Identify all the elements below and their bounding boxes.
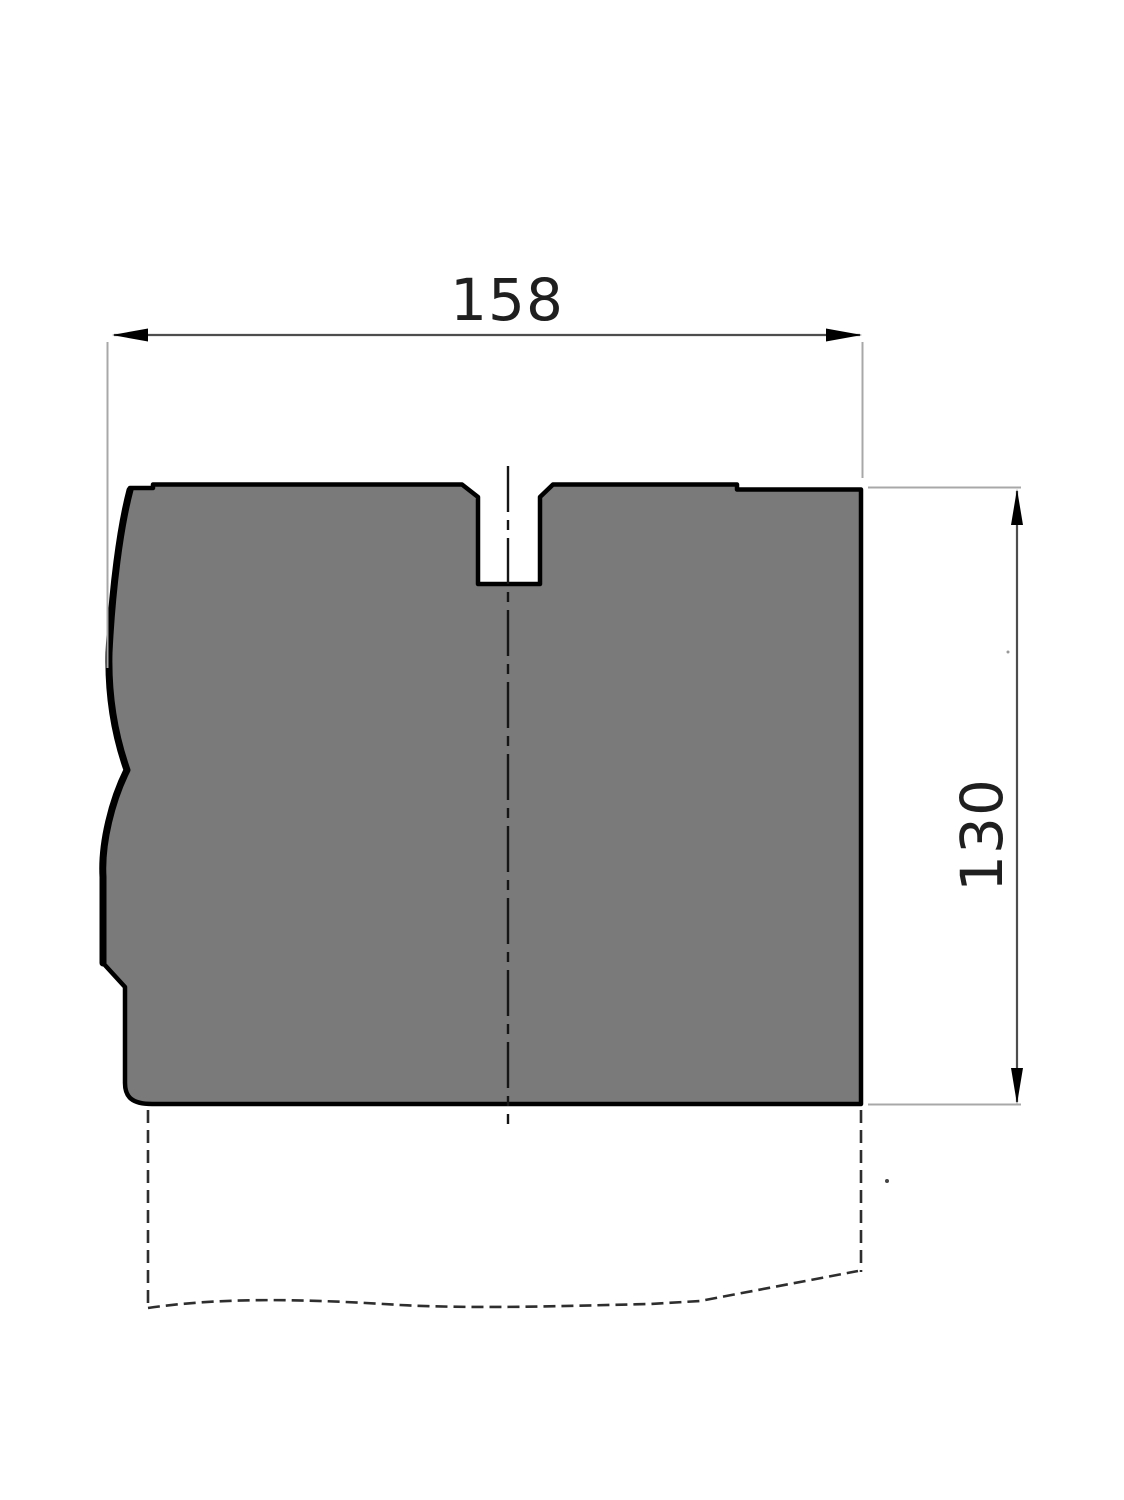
dimension-width-label: 158	[450, 266, 564, 334]
dimension-height-label: 130	[948, 778, 1016, 892]
part-section	[103, 485, 861, 1105]
arrowhead-top	[1011, 489, 1023, 525]
technical-drawing: 158 130	[0, 0, 1124, 1500]
part-outline	[103, 485, 861, 1105]
arrowhead-left	[112, 329, 148, 342]
phantom-bottom-edge	[148, 1271, 858, 1308]
print-specks	[885, 651, 1010, 1184]
phantom-outline	[148, 1110, 861, 1308]
arrowhead-bottom	[1011, 1068, 1023, 1104]
speck-dot	[885, 1179, 889, 1183]
drawing-canvas: 158 130	[0, 0, 1124, 1500]
speck-dot	[1007, 651, 1010, 654]
dimension-height: 130	[868, 488, 1023, 1105]
arrowhead-right	[826, 329, 862, 342]
